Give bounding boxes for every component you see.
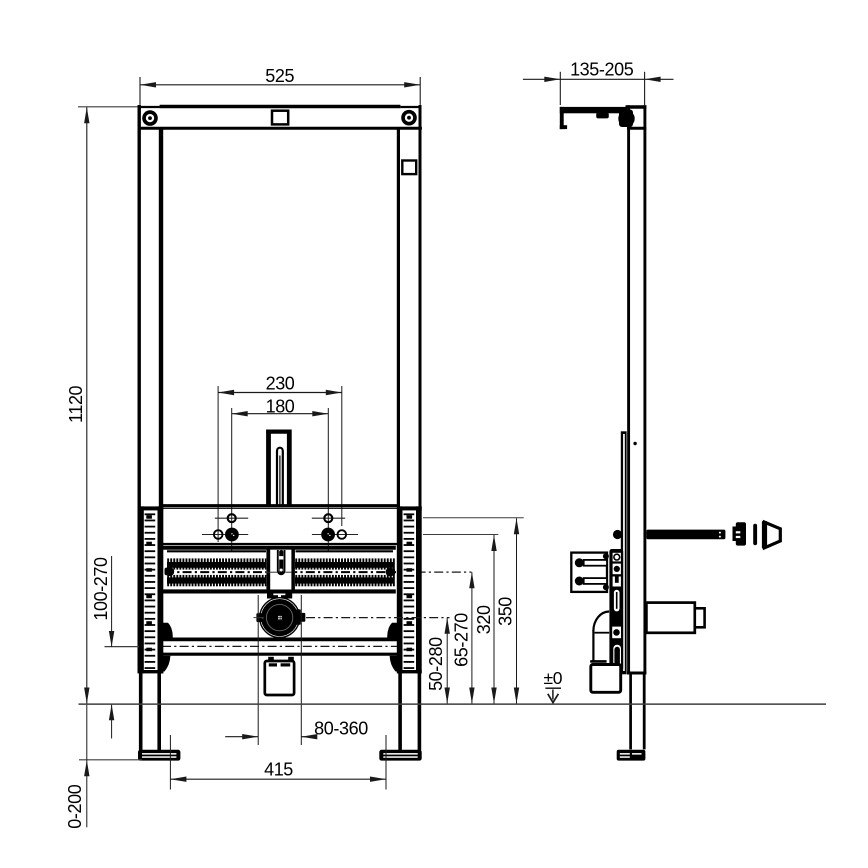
svg-text:0-200: 0-200 (65, 784, 85, 828)
svg-text:350: 350 (496, 597, 516, 626)
svg-text:320: 320 (474, 605, 494, 634)
svg-text:100-270: 100-270 (91, 557, 111, 621)
svg-text:65-270: 65-270 (452, 613, 472, 667)
svg-text:525: 525 (265, 66, 294, 86)
svg-text:135-205: 135-205 (570, 60, 634, 80)
svg-text:415: 415 (264, 759, 293, 779)
svg-text:230: 230 (266, 373, 295, 393)
svg-text:80-360: 80-360 (314, 718, 368, 738)
svg-text:1120: 1120 (66, 385, 86, 422)
svg-text:180: 180 (266, 396, 295, 416)
svg-text:50-280: 50-280 (426, 637, 446, 691)
svg-text:±0: ±0 (544, 668, 563, 688)
